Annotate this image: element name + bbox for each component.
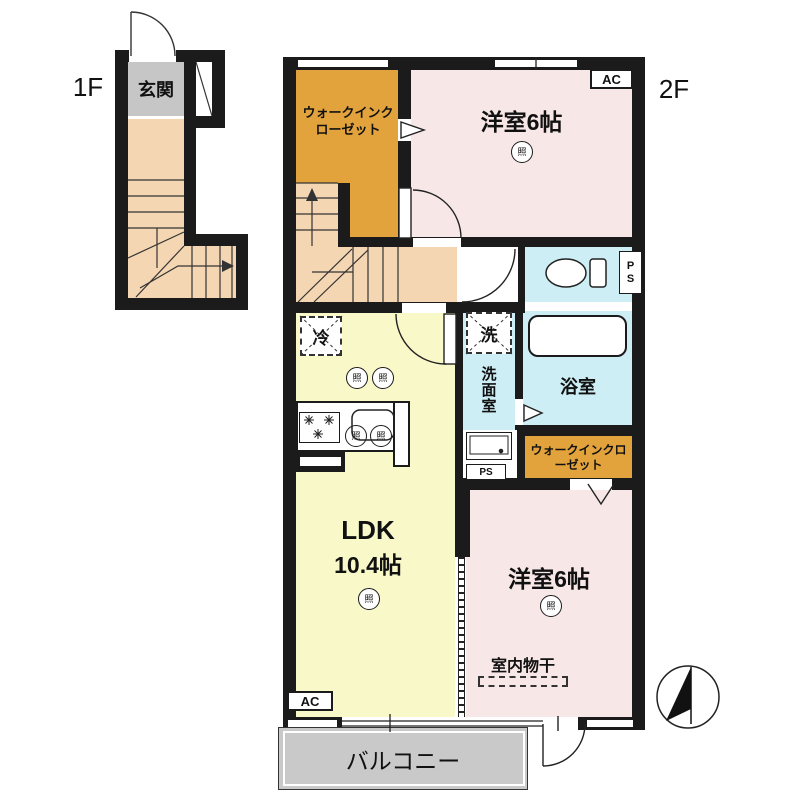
ceiling-light-symbol: 照 <box>358 588 380 610</box>
wall-segment <box>184 128 196 246</box>
compass-north-icon <box>657 666 719 728</box>
western-room-bottom-label: 洋室6帖 <box>466 561 632 593</box>
closet-door-opening <box>398 119 411 141</box>
indoor-drying-rail <box>478 676 568 687</box>
refrigerator-space: 冷 <box>300 316 342 356</box>
hallway-stair-landing <box>296 247 457 302</box>
wall-segment <box>455 302 463 480</box>
indoor-drying-label: 室内物干 <box>468 653 578 675</box>
wall-segment <box>517 425 645 436</box>
wall-segment <box>184 116 225 128</box>
ac-unit-bottom: AC <box>287 691 333 711</box>
bathroom-door-opening <box>515 399 523 425</box>
wall-segment <box>338 237 645 247</box>
wall-segment <box>115 298 248 310</box>
ceiling-light-symbol: 照 <box>370 425 392 447</box>
ldk-door-opening <box>402 303 446 313</box>
wall-segment <box>398 70 411 247</box>
western-room-top-label: 洋室6帖 <box>411 104 632 136</box>
washroom-label: 洗面室 <box>475 348 501 432</box>
walk-in-closet-mid-label: ウォークインクローゼット <box>527 439 630 477</box>
ceiling-light-symbol: 照 <box>345 425 367 447</box>
stair-1f-upper <box>128 119 184 246</box>
closet-mid-door-opening <box>570 479 612 490</box>
kitchen-counter-return <box>393 401 410 467</box>
bathroom-label: 浴室 <box>554 374 602 398</box>
kitchen-window <box>300 457 341 466</box>
floor-1-label: 1F <box>66 72 110 102</box>
floor-plan: 1F 玄関 バルコニー AC PS 洗 PS 冷 <box>0 0 800 800</box>
entrance-door-opening <box>129 50 176 62</box>
floor-2-label: 2F <box>650 74 698 104</box>
sliding-door-partition <box>458 557 465 717</box>
window-top-left <box>298 60 388 67</box>
vanity-sink-cabinet <box>466 432 512 460</box>
toilet-room <box>525 247 632 302</box>
entrance-void <box>196 62 212 116</box>
wall-segment <box>115 50 128 310</box>
wall-segment <box>518 247 525 302</box>
stair-1f-lower <box>128 246 236 298</box>
toilet-door-cell <box>457 247 518 302</box>
ac-unit-top: AC <box>590 69 633 89</box>
pipe-space-toilet: PS <box>619 251 642 294</box>
ldk-size-label: 10.4帖 <box>306 549 430 577</box>
balcony-door-opening <box>543 717 578 730</box>
window-top-right <box>495 60 577 67</box>
pipe-space-2: PS <box>466 464 506 480</box>
ceiling-light-symbol: 照 <box>540 595 562 617</box>
walk-in-closet-top-label: ウォークインクローゼット <box>298 92 398 152</box>
stair-2f-upper <box>296 183 338 247</box>
ceiling-light-symbol: 照 <box>346 367 368 389</box>
genkan-label: 玄関 <box>128 62 184 116</box>
wall-segment <box>283 57 296 730</box>
wall-segment <box>455 480 470 557</box>
ceiling-light-symbol: 照 <box>511 141 533 163</box>
wall-segment <box>632 57 645 730</box>
stove <box>299 412 340 443</box>
bathtub <box>528 315 627 357</box>
bedroom-top-door-opening <box>413 238 461 247</box>
window-bottom-left <box>288 720 337 727</box>
balcony-label: バルコニー <box>278 729 528 789</box>
ldk-label: LDK <box>316 515 420 545</box>
window-bottom-right <box>587 720 633 727</box>
ceiling-light-symbol: 照 <box>372 367 394 389</box>
